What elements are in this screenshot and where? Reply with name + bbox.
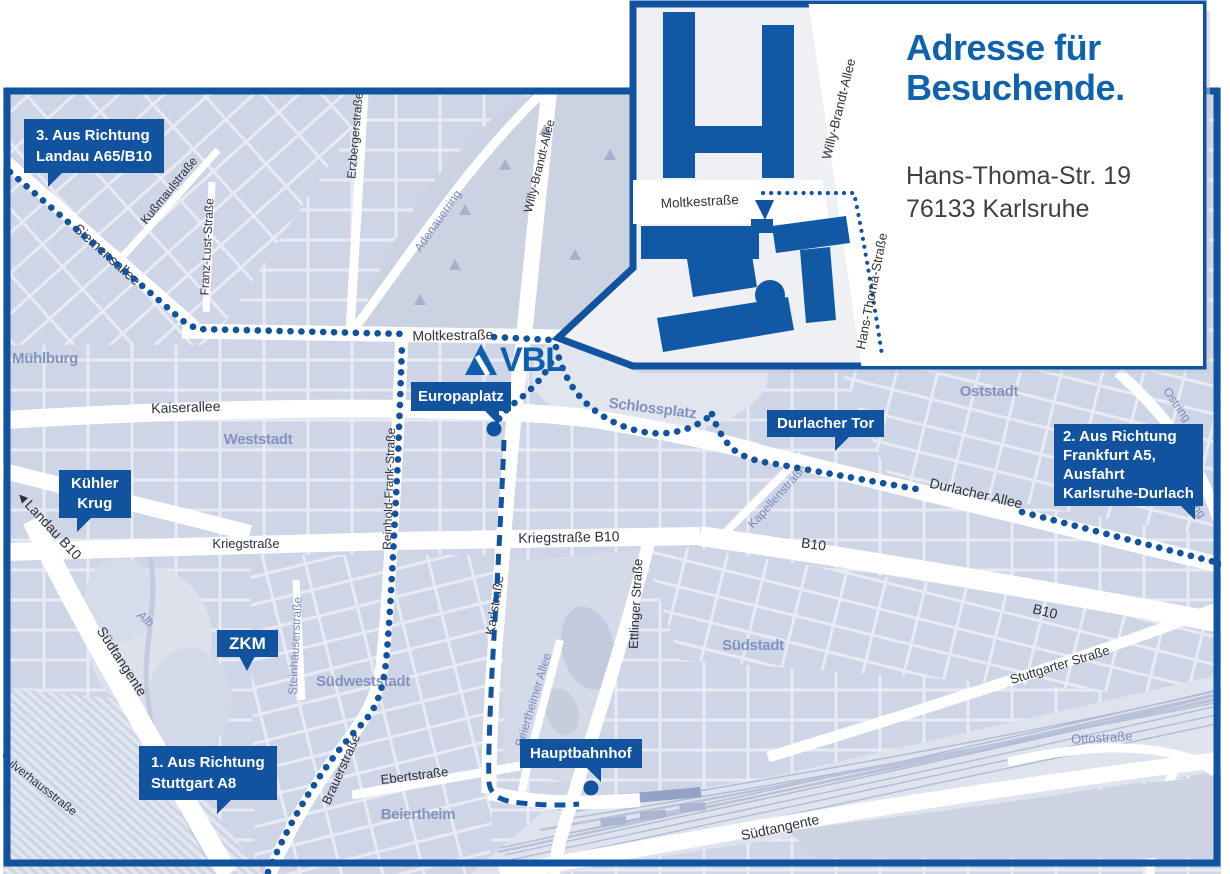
- district-label-suedweststadt: Südweststadt: [316, 673, 410, 690]
- district-label-suedstadt: Südstadt: [722, 637, 784, 654]
- callout-pointer: [239, 656, 255, 671]
- inset-address-line1: Hans-Thoma-Str. 19: [906, 160, 1131, 193]
- callout-frankfurt-line4: Karlsruhe-Durlach: [1063, 484, 1194, 503]
- street-label-kaiserallee: Kaiserallee: [151, 398, 221, 416]
- callout-pointer: [484, 410, 499, 425]
- district-label-oststadt: Oststadt: [960, 383, 1019, 400]
- page-margin-right: [1221, 0, 1230, 874]
- hauptbahnhof-marker: [584, 781, 599, 796]
- district-label-muehlburg: Mühlburg: [12, 350, 78, 367]
- karlsruhe-map-page: Moltkestraße Kaiserallee Siemensallee Ku…: [0, 0, 1230, 874]
- callout-hauptbahnhof-label: Hauptbahnhof: [530, 745, 632, 762]
- vbl-logo: VBL: [463, 341, 565, 377]
- callout-pointer: [48, 172, 63, 187]
- inset-title: Adresse für Besuchende.: [906, 28, 1125, 108]
- callout-europaplatz: Europaplatz: [411, 382, 511, 411]
- street-label-ottostrasse: Ottostraße: [1071, 728, 1133, 746]
- callout-pointer: [586, 767, 601, 782]
- callout-kuehler-krug: Kühler Krug: [59, 470, 131, 518]
- callout-zkm: ZKM: [217, 630, 278, 657]
- callout-zkm-label: ZKM: [229, 634, 266, 653]
- callout-pointer: [77, 517, 92, 532]
- callout-frankfurt: 2. Aus Richtung Frankfurt A5, Ausfahrt K…: [1054, 424, 1203, 506]
- callout-pointer: [1180, 505, 1195, 520]
- vbl-logo-text: VBL: [500, 343, 565, 377]
- inset-address: Hans-Thoma-Str. 19 76133 Karlsruhe: [906, 160, 1131, 226]
- callout-stuttgart: 1. Aus Richtung Stuttgart A8: [139, 746, 277, 800]
- callout-landau-line2: Landau A65/B10: [36, 146, 152, 167]
- callout-frankfurt-line2: Frankfurt A5,: [1063, 446, 1194, 465]
- district-label-beiertheim: Beiertheim: [381, 806, 456, 823]
- district-label-weststadt: Weststadt: [224, 431, 293, 448]
- callout-pointer: [835, 436, 850, 451]
- street-label-kriegstrasse-b10: Kriegstraße B10: [518, 528, 620, 546]
- callout-frankfurt-line1: 2. Aus Richtung: [1063, 427, 1194, 446]
- callout-landau: 3. Aus Richtung Landau A65/B10: [24, 119, 164, 173]
- inset-title-line2: Besuchende.: [906, 68, 1125, 108]
- vbl-logo-triangle-icon: [463, 341, 500, 377]
- callout-stuttgart-line1: 1. Aus Richtung: [151, 752, 265, 773]
- page-margin-left: [0, 0, 3, 874]
- street-label-kriegstrasse: Kriegstraße: [212, 536, 279, 551]
- callout-kuehler-krug-line2: Krug: [71, 494, 119, 514]
- callout-europaplatz-label: Europaplatz: [418, 388, 504, 405]
- callout-stuttgart-line2: Stuttgart A8: [151, 773, 265, 794]
- inset-title-line1: Adresse für: [906, 28, 1125, 68]
- callout-frankfurt-line3: Ausfahrt: [1063, 465, 1194, 484]
- callout-durlacher-tor-label: Durlacher Tor: [777, 415, 874, 432]
- inset-address-line2: 76133 Karlsruhe: [906, 193, 1131, 226]
- callout-durlacher-tor: Durlacher Tor: [767, 410, 884, 437]
- callout-kuehler-krug-line1: Kühler: [71, 474, 119, 494]
- callout-hauptbahnhof: Hauptbahnhof: [520, 739, 642, 768]
- callout-landau-line1: 3. Aus Richtung: [36, 125, 152, 146]
- callout-pointer: [217, 799, 232, 814]
